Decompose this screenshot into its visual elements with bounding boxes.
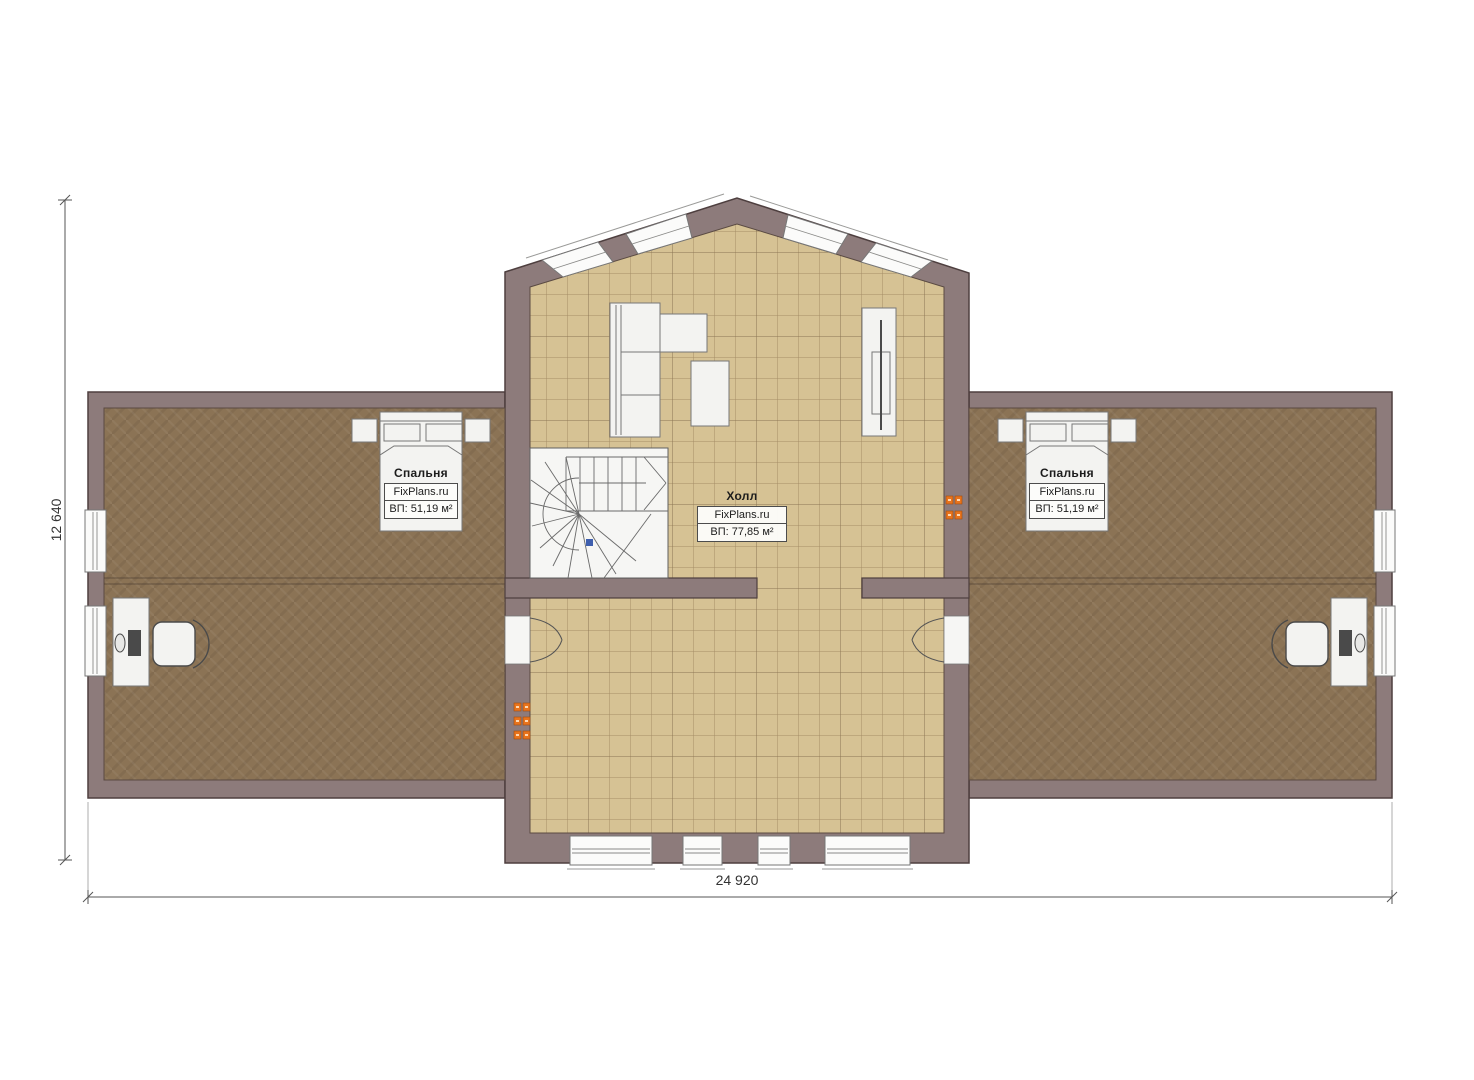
window: [1374, 510, 1395, 572]
room-name: Спальня: [1029, 466, 1105, 480]
pillow: [384, 424, 420, 441]
interior-wall: [862, 578, 969, 598]
room-name: Холл: [697, 489, 787, 503]
brand-label: FixPlans.ru: [698, 507, 786, 523]
room-label-hall: Холл FixPlans.ru ВП: 77,85 м²: [697, 489, 787, 542]
nightstand: [352, 419, 377, 442]
desk-icon: [113, 598, 149, 686]
coffee-table-icon: [691, 361, 729, 426]
dimension-height-label: 12 640: [48, 470, 66, 570]
room-info-box: FixPlans.ru ВП: 51,19 м²: [384, 483, 458, 519]
window: [1374, 606, 1395, 676]
dimension-width-label: 24 920: [687, 872, 787, 888]
room-area: ВП: 77,85 м²: [698, 523, 786, 540]
door-opening: [944, 616, 969, 664]
staircase: [530, 448, 668, 578]
desk-icon: [1331, 598, 1367, 686]
pillow: [1072, 424, 1108, 441]
room-info-box: FixPlans.ru ВП: 51,19 м²: [1029, 483, 1105, 519]
room-label-bedroom-right: Спальня FixPlans.ru ВП: 51,19 м²: [1029, 466, 1105, 519]
interior-walls: [505, 578, 969, 598]
interior-wall: [505, 578, 757, 598]
window: [85, 510, 106, 572]
laptop-icon: [128, 630, 141, 656]
room-area: ВП: 51,19 м²: [1030, 500, 1104, 517]
room-area: ВП: 51,19 м²: [385, 500, 457, 517]
room-info-box: FixPlans.ru ВП: 77,85 м²: [697, 506, 787, 542]
tv-stand-icon: [862, 308, 896, 436]
pillow: [1030, 424, 1066, 441]
window: [570, 836, 652, 865]
room-label-bedroom-left: Спальня FixPlans.ru ВП: 51,19 м²: [384, 466, 458, 519]
brand-label: FixPlans.ru: [1030, 484, 1104, 500]
nightstand: [465, 419, 490, 442]
stair-direction-marker: [586, 539, 593, 546]
brand-label: FixPlans.ru: [385, 484, 457, 500]
window: [825, 836, 910, 865]
floor-plan-canvas: Спальня FixPlans.ru ВП: 51,19 м² Холл Fi…: [0, 0, 1474, 1080]
laptop-icon: [1339, 630, 1352, 656]
window: [683, 836, 722, 865]
nightstand: [1111, 419, 1136, 442]
nightstand: [998, 419, 1023, 442]
window: [85, 606, 106, 676]
door-opening: [505, 616, 530, 664]
pillow: [426, 424, 462, 441]
room-name: Спальня: [384, 466, 458, 480]
window: [758, 836, 790, 865]
